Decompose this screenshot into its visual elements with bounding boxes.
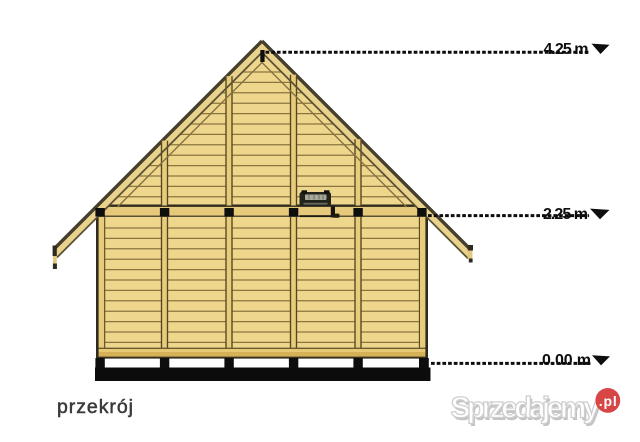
svg-text:4.25 m: 4.25 m xyxy=(544,41,589,58)
svg-text:.pl: .pl xyxy=(599,393,617,409)
svg-text:Sprzedajemy: Sprzedajemy xyxy=(451,392,600,425)
svg-text:przekrój: przekrój xyxy=(57,396,133,418)
svg-text:2.25 m: 2.25 m xyxy=(543,206,588,223)
svg-text:0.00 m: 0.00 m xyxy=(542,352,591,369)
